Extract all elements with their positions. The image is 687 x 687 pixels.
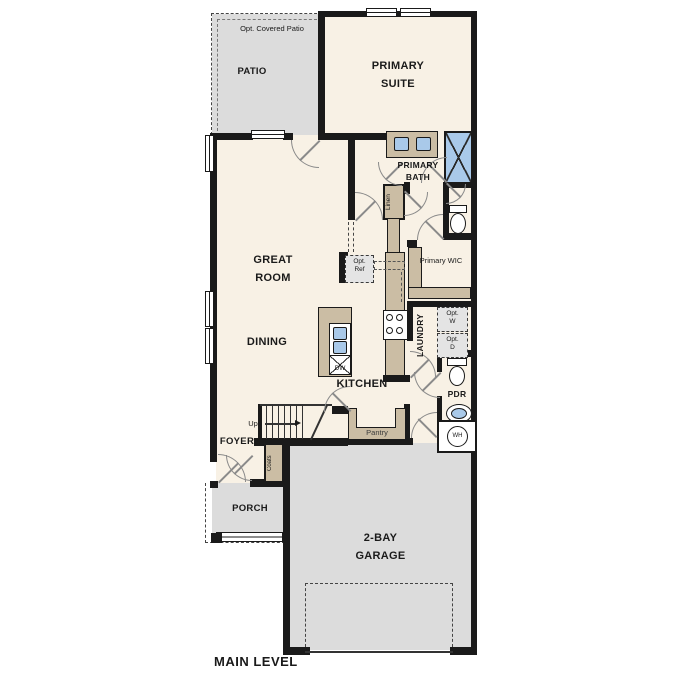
window-symbol xyxy=(205,328,214,364)
cooktop-burner xyxy=(396,327,403,334)
wall xyxy=(216,133,253,140)
shower xyxy=(444,131,473,184)
island-sink xyxy=(333,341,347,354)
opt-dryer-box: Opt. D xyxy=(437,333,468,358)
opt-ref-label2: Ref xyxy=(354,266,364,273)
cooktop-burner xyxy=(386,314,393,321)
opt-washer-box: Opt. W xyxy=(437,307,468,332)
opt-washer-label: Opt. xyxy=(446,310,458,317)
foyer-label: FOYER xyxy=(214,436,260,447)
upper-cabinet-dashed xyxy=(374,261,405,270)
porch-step xyxy=(216,532,283,542)
pdr-label: PDR xyxy=(441,389,473,399)
cooktop-burner xyxy=(386,327,393,334)
wall xyxy=(450,647,477,655)
vanity-sink xyxy=(416,137,431,151)
water-heater-label: WH xyxy=(447,433,468,439)
linen-label: Linen xyxy=(385,187,403,217)
plan-title: MAIN LEVEL xyxy=(214,654,324,669)
great-room-label: GREAT ROOM xyxy=(238,252,308,287)
window-symbol xyxy=(251,130,285,139)
garage-label: 2-BAY GARAGE xyxy=(338,530,423,565)
stairs-direction-line xyxy=(265,423,295,425)
primary-bath-label: PRIMARY BATH xyxy=(389,159,447,184)
porch-label: PORCH xyxy=(222,503,278,514)
primary-suite-label: PRIMARY SUITE xyxy=(358,58,438,93)
cased-opening-dashed xyxy=(348,222,354,252)
laundry-label: LAUNDRY xyxy=(415,304,432,366)
pantry-interior xyxy=(356,408,396,428)
kitchen-label: KITCHEN xyxy=(331,378,393,390)
wall xyxy=(283,440,290,655)
garage-door-dashed xyxy=(305,583,453,647)
opt-ref-box: Opt. Ref xyxy=(345,255,374,283)
dining-label: DINING xyxy=(237,336,297,348)
wall xyxy=(348,133,355,220)
wall xyxy=(437,396,442,422)
kitchen-counter xyxy=(387,218,400,254)
window-symbol xyxy=(205,291,214,327)
wall xyxy=(210,481,218,488)
wall xyxy=(318,11,477,17)
stairs-direction-arrow xyxy=(295,420,301,426)
cooktop-burner xyxy=(396,314,403,321)
wic-shelving xyxy=(408,287,471,299)
opt-washer-label2: W xyxy=(449,318,455,325)
toilet xyxy=(450,213,466,234)
window-symbol xyxy=(400,8,431,17)
stair-tread xyxy=(302,406,303,439)
toilet xyxy=(449,366,465,386)
porch-post xyxy=(211,533,222,543)
wall xyxy=(471,11,477,655)
window-symbol xyxy=(205,135,214,172)
vanity-sink xyxy=(394,137,409,151)
opt-dryer-label: Opt. xyxy=(446,336,458,343)
dishwasher-label: DW xyxy=(329,365,351,372)
primary-wic-label: Primary WIC xyxy=(413,256,469,267)
opt-ref-label: Opt. xyxy=(353,258,365,265)
pdr-sink-basin xyxy=(451,408,467,419)
patio-note-label: Opt. Covered Patio xyxy=(222,24,322,33)
wall xyxy=(443,233,477,240)
stairs-up-label: Up xyxy=(244,419,262,428)
window-symbol xyxy=(366,8,397,17)
toilet xyxy=(449,205,467,213)
coats-label: Coats xyxy=(267,447,281,479)
island-sink xyxy=(333,327,347,340)
patio-label: PATIO xyxy=(222,66,282,77)
wall xyxy=(437,357,442,372)
toilet xyxy=(447,358,467,366)
garage-door-line xyxy=(305,651,453,653)
wall xyxy=(407,240,417,247)
upper-cabinet-dashed xyxy=(401,272,403,302)
pantry-label: Pantry xyxy=(352,428,402,437)
opt-dryer-label2: D xyxy=(450,344,455,351)
